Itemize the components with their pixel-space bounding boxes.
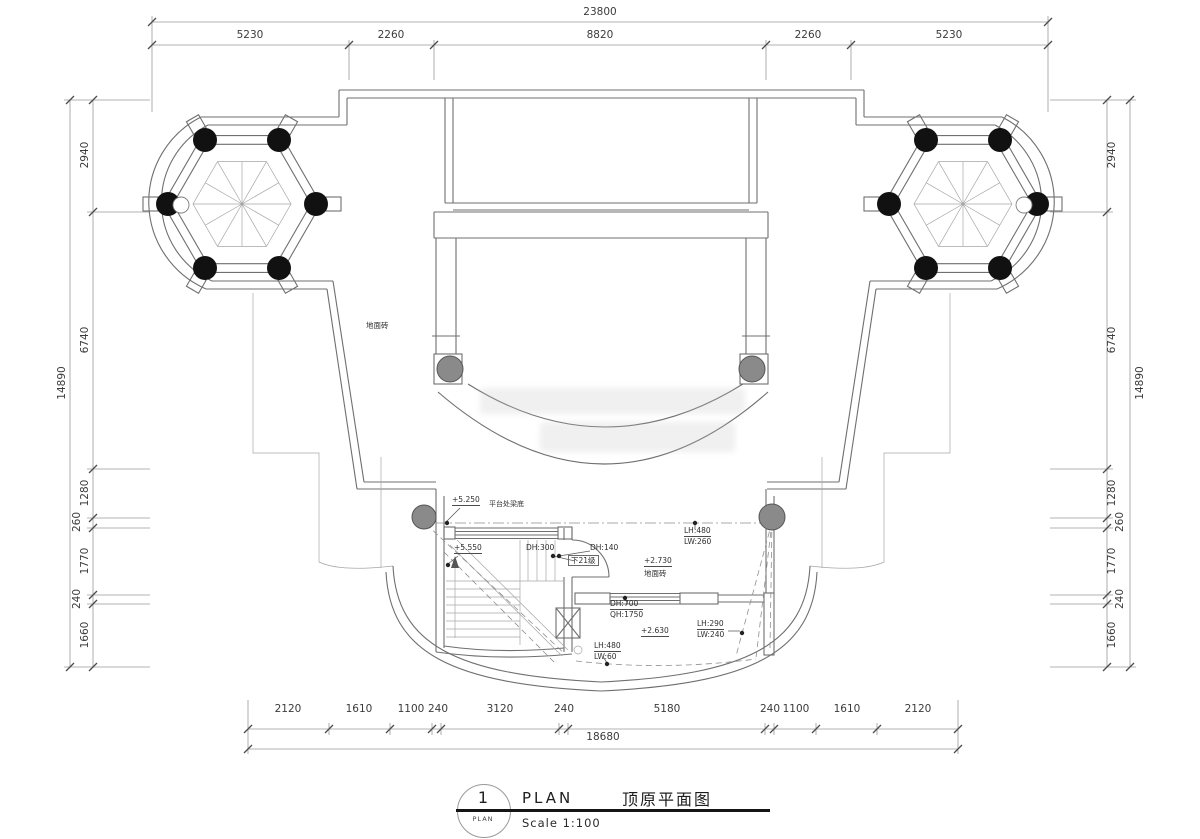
label-room-floor-tile: 地面砖	[644, 569, 667, 578]
column-gray-lower-left	[412, 505, 436, 529]
label-down-steps: 下21级	[568, 555, 599, 566]
label-stair-level: +5.550	[454, 543, 482, 554]
floor-plan-sheet: 23800 5230 2260 8820 2260 5230 2120 1610…	[0, 0, 1200, 839]
label-window-mid: DH:700 QH:1750	[610, 599, 643, 620]
dim-top-total: 23800	[560, 6, 640, 18]
label-window-bottom: LH:480 LW:60	[594, 641, 621, 662]
dim-left-seg: 2940	[79, 125, 91, 185]
label-platform-level: +5.250	[452, 495, 480, 506]
dim-bottom-seg: 2120	[248, 703, 328, 715]
dim-top-seg: 8820	[560, 29, 640, 41]
label-window-right: LH:480 LW:260	[684, 526, 711, 547]
label-window-se: LH:290 LW:240	[697, 619, 724, 640]
small-round-column	[173, 197, 189, 213]
dim-bottom-total: 18680	[563, 731, 643, 743]
watermark-blur	[480, 388, 745, 414]
label-level-2630: +2.630	[641, 626, 669, 637]
column-black	[193, 256, 217, 280]
column-black	[988, 128, 1012, 152]
column-black	[914, 128, 938, 152]
dim-left-total: 14890	[56, 353, 68, 413]
column-black	[914, 256, 938, 280]
drawing-number-caption: PLAN	[461, 815, 505, 823]
dim-bottom-seg: 5180	[627, 703, 707, 715]
dim-left-seg: 6740	[79, 310, 91, 370]
watermark-blur	[540, 422, 735, 452]
label-dh300: DH:300	[526, 543, 554, 552]
dim-bottom-seg: 240	[524, 703, 604, 715]
x-column	[556, 608, 580, 638]
label-room-level: +2.730	[644, 556, 672, 567]
dim-bottom-seg: 2120	[878, 703, 958, 715]
column-black	[877, 192, 901, 216]
dim-right-seg: 6740	[1106, 310, 1118, 370]
dim-right-seg: 2940	[1106, 125, 1118, 185]
dim-top-seg: 5230	[210, 29, 290, 41]
column-black	[193, 128, 217, 152]
stair-direction-arrow	[451, 556, 459, 568]
title-block-rule	[456, 809, 770, 812]
dim-right-seg: 1660	[1106, 605, 1118, 665]
column-black	[304, 192, 328, 216]
drawing-number: 1	[465, 788, 501, 807]
label-platform-beam: 平台处梁底	[489, 500, 524, 509]
column-gray-upper-right	[739, 356, 765, 382]
dim-top-seg: 2260	[351, 29, 431, 41]
column-black	[267, 256, 291, 280]
drawing-title-cn: 顶原平面图	[622, 786, 712, 810]
terrace-band	[434, 212, 768, 238]
dim-left-seg: 1660	[79, 605, 91, 665]
label-dh140: DH:140	[590, 543, 618, 552]
courtyard	[432, 98, 778, 523]
dim-bottom-seg: 1610	[807, 703, 887, 715]
column-black	[988, 256, 1012, 280]
column-gray-upper-left	[437, 356, 463, 382]
small-round-column	[1016, 197, 1032, 213]
drawing-scale: Scale 1:100	[522, 816, 601, 830]
left-tower	[143, 115, 341, 293]
dim-top-seg: 5230	[909, 29, 989, 41]
column-gray-lower-right	[759, 504, 785, 530]
column-black	[267, 128, 291, 152]
dim-top-seg: 2260	[768, 29, 848, 41]
dim-right-total: 14890	[1134, 353, 1146, 413]
drawing-title-en: PLAN	[522, 789, 573, 807]
label-deck-floor-tile: 地面砖	[366, 321, 389, 330]
